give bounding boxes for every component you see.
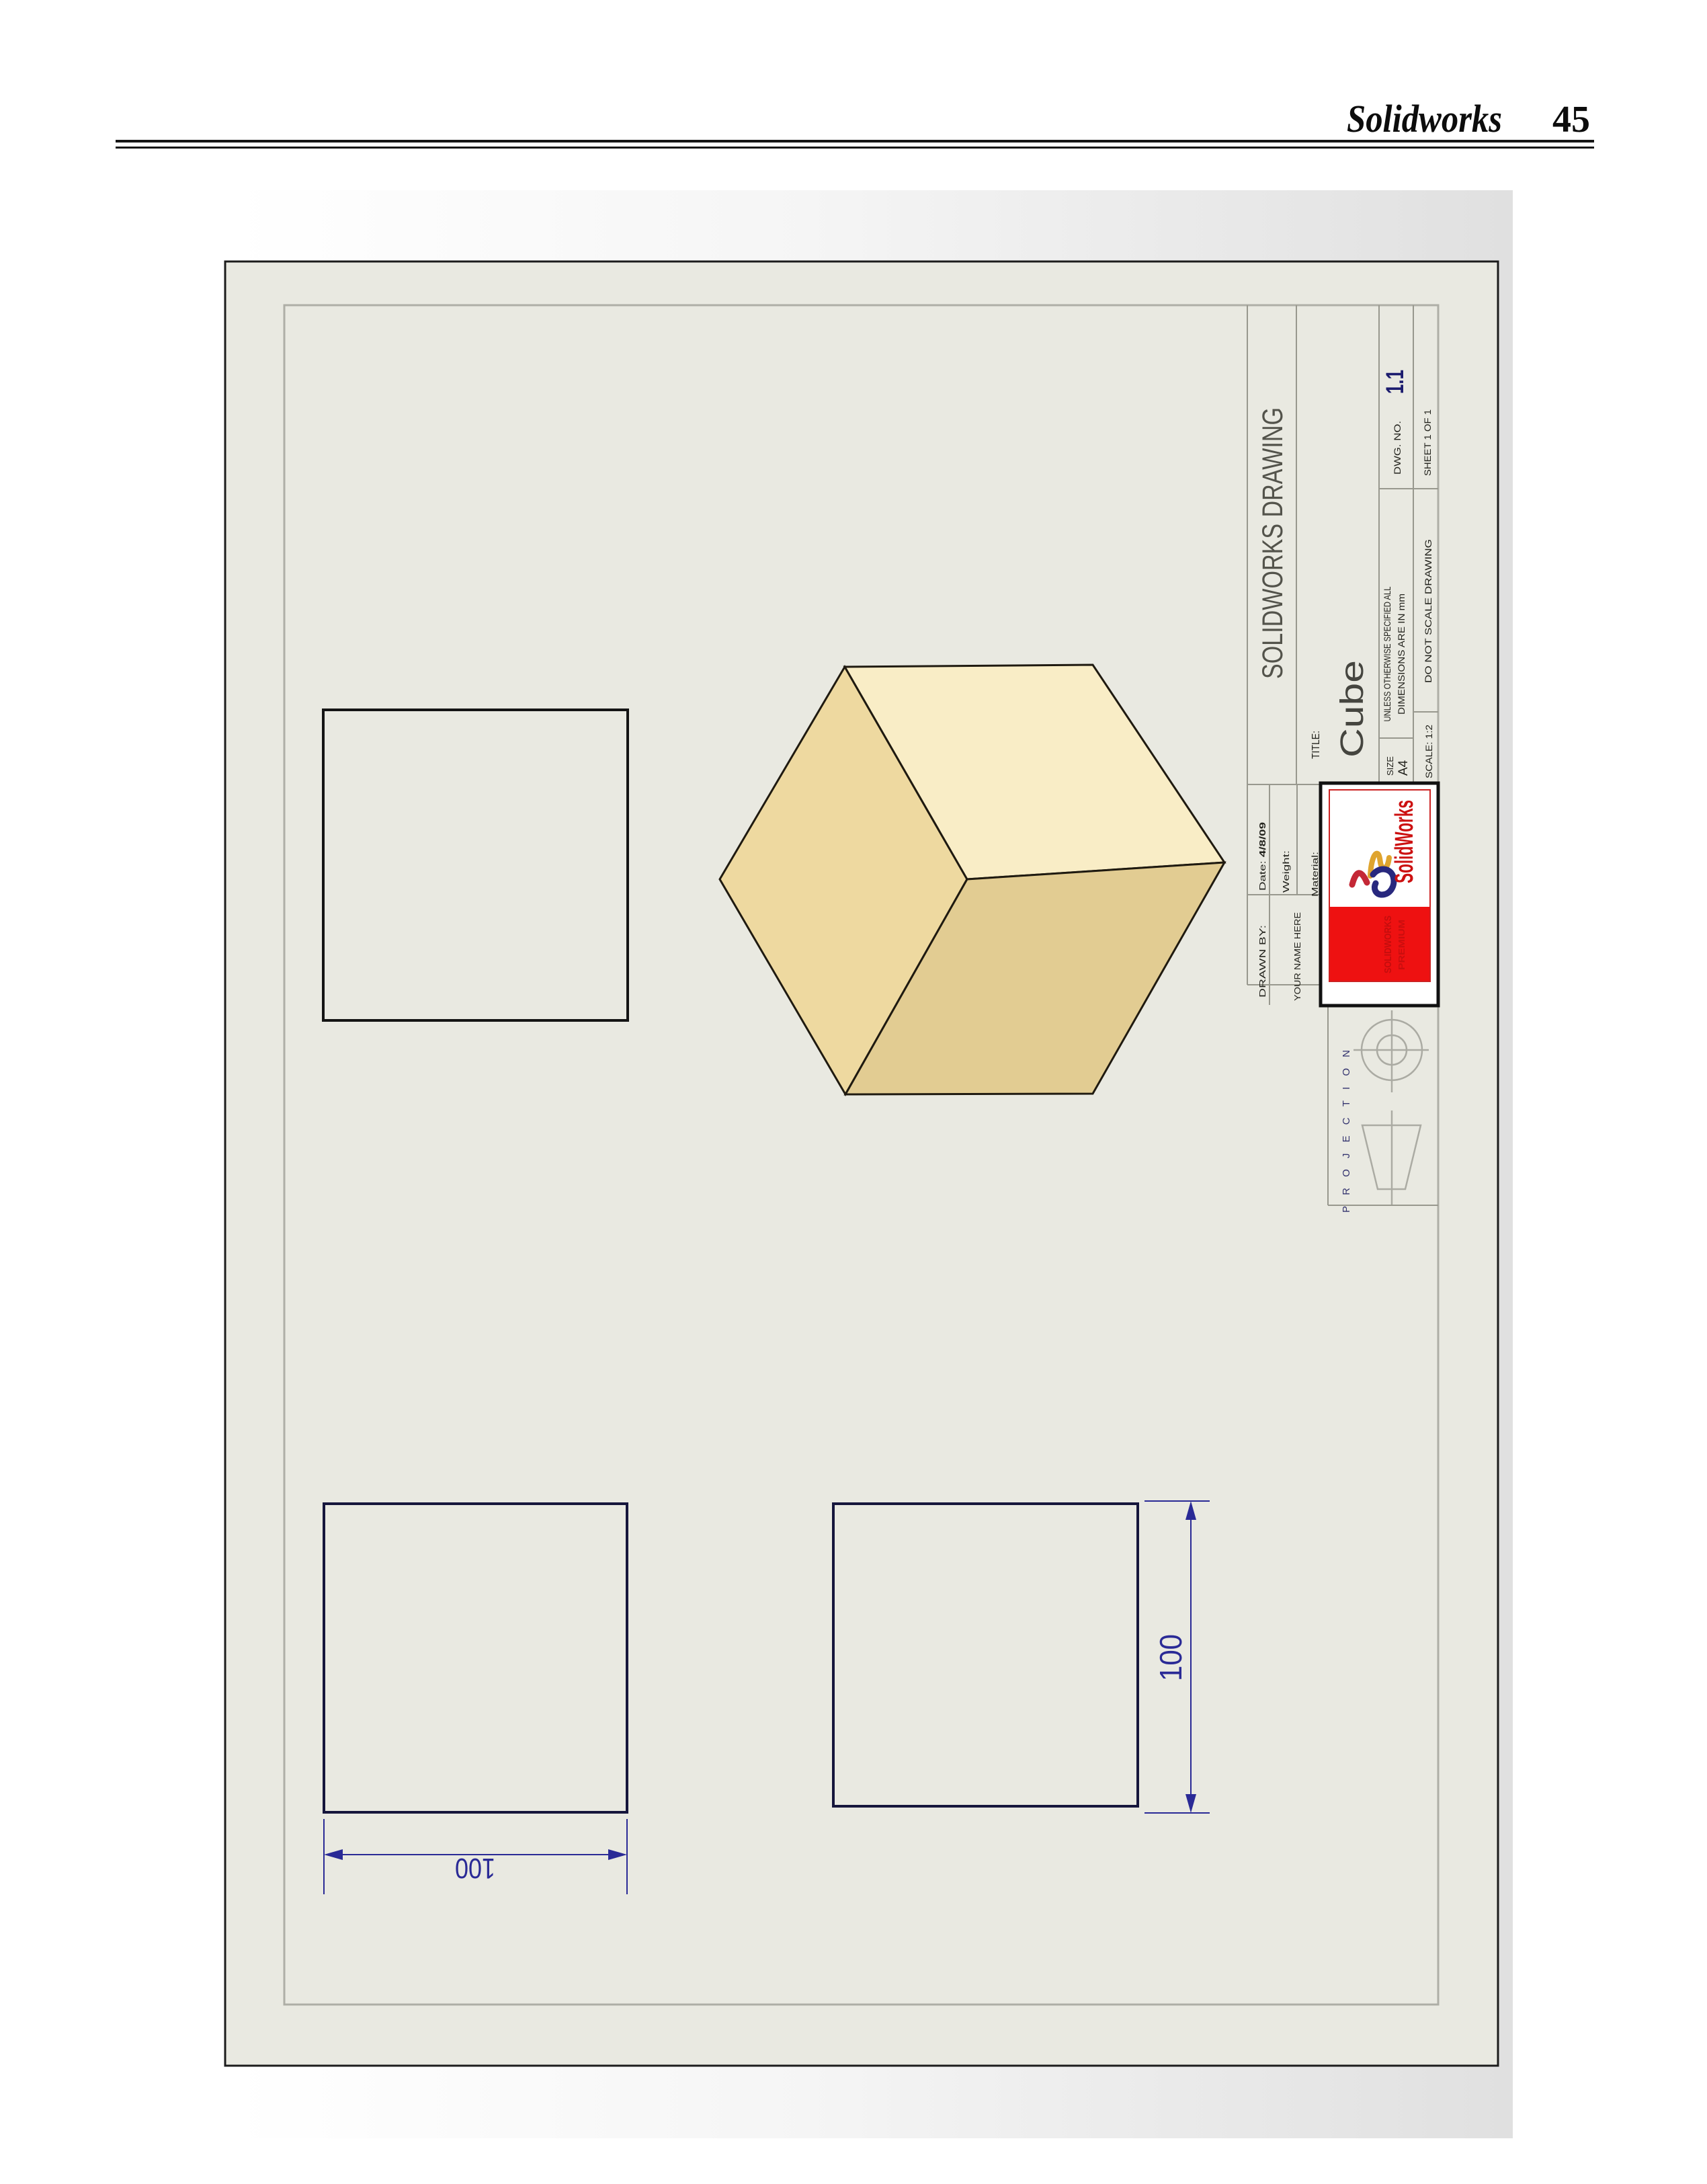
svg-text:SOLIDWORKS DRAWING: SOLIDWORKS DRAWING bbox=[1257, 407, 1289, 679]
svg-text:100: 100 bbox=[1153, 1634, 1188, 1681]
svg-text:SOLIDWORKS: SOLIDWORKS bbox=[1382, 916, 1394, 973]
svg-text:SolidWorks: SolidWorks bbox=[1390, 800, 1419, 883]
svg-text:Cube: Cube bbox=[1335, 660, 1370, 758]
svg-text:Material:: Material: bbox=[1310, 852, 1320, 897]
svg-text:UNLESS OTHERWISE SPECIFIED ALL: UNLESS OTHERWISE SPECIFIED ALL bbox=[1382, 586, 1392, 721]
svg-text:YOUR NAME HERE: YOUR NAME HERE bbox=[1292, 912, 1302, 1001]
svg-text:Date: 4/8/09: Date: 4/8/09 bbox=[1257, 822, 1267, 891]
svg-text:DIMENSIONS ARE IN mm: DIMENSIONS ARE IN mm bbox=[1396, 594, 1407, 715]
svg-text:45: 45 bbox=[1552, 99, 1590, 140]
svg-text:Solidworks: Solidworks bbox=[1347, 97, 1502, 140]
svg-text:SHEET 1 OF 1: SHEET 1 OF 1 bbox=[1422, 409, 1433, 476]
svg-text:DWG. NO.: DWG. NO. bbox=[1392, 421, 1403, 475]
svg-text:SCALE: 1:2: SCALE: 1:2 bbox=[1423, 725, 1434, 778]
svg-text:1.1: 1.1 bbox=[1381, 370, 1409, 394]
svg-text:PREMIUM: PREMIUM bbox=[1397, 920, 1407, 970]
svg-text:DO NOT SCALE DRAWING: DO NOT SCALE DRAWING bbox=[1423, 539, 1433, 683]
svg-text:TITLE:: TITLE: bbox=[1310, 731, 1322, 759]
svg-text:A4: A4 bbox=[1397, 760, 1411, 776]
svg-text:SIZE: SIZE bbox=[1385, 756, 1395, 776]
svg-text:DRAWN BY:: DRAWN BY: bbox=[1257, 925, 1267, 998]
svg-text:100: 100 bbox=[455, 1852, 495, 1884]
svg-text:Weight:: Weight: bbox=[1281, 850, 1291, 893]
